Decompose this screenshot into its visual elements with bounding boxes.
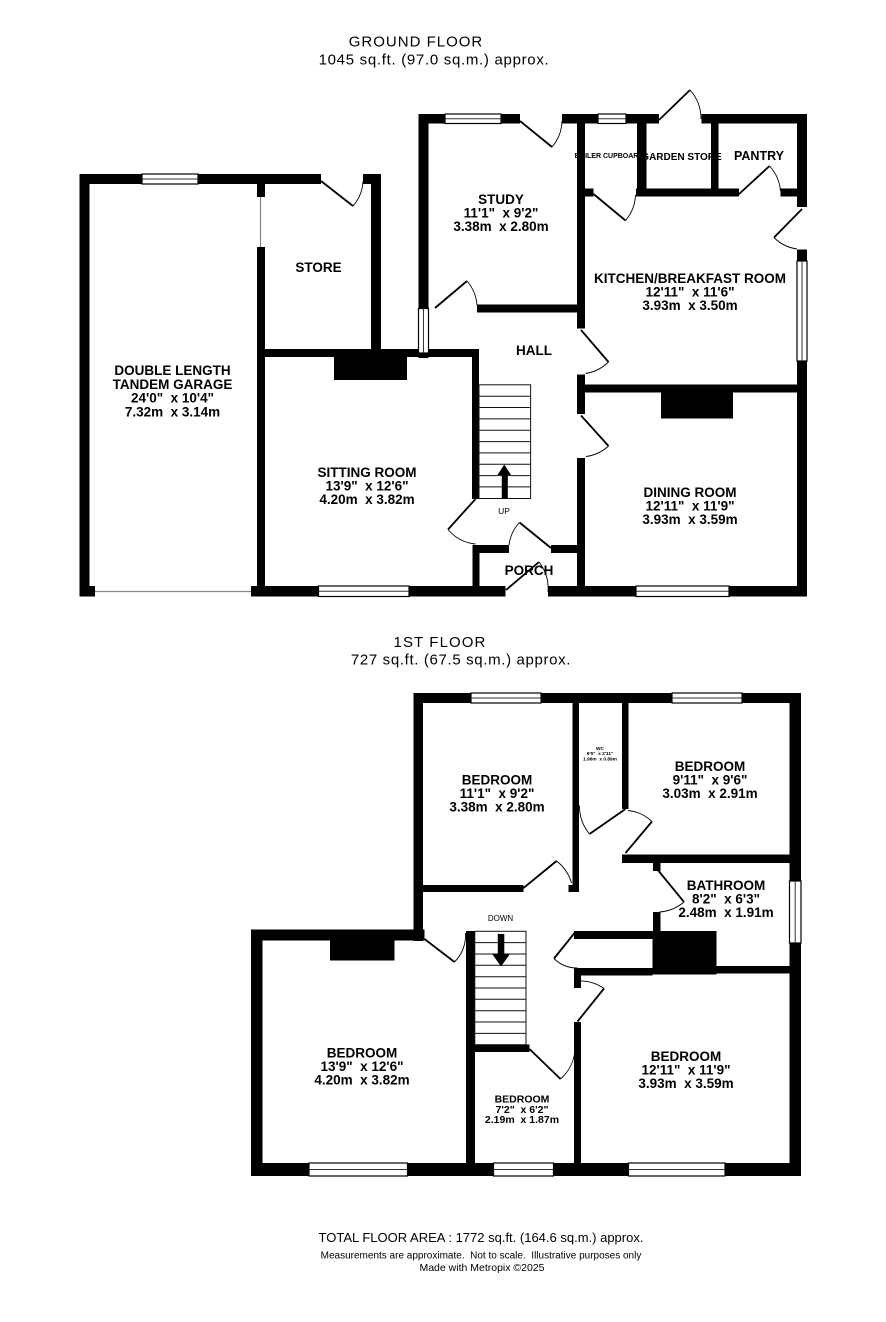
svg-text:BEDROOM9'11" x 9'6"3.03m x 2: BEDROOM9'11" x 9'6"3.03m x 2.91m (662, 759, 757, 801)
svg-text:DOUBLE LENGTHTANDEM GARAGE24'0: DOUBLE LENGTHTANDEM GARAGE24'0" x 10'4"7… (113, 363, 233, 419)
svg-text:BEDROOM7'2" x 6'2"2.19m x 1.: BEDROOM7'2" x 6'2"2.19m x 1.87m (485, 1094, 559, 1127)
svg-text:1ST FLOOR: 1ST FLOOR (394, 634, 487, 651)
svg-text:BOILER CUPBOARD: BOILER CUPBOARD (575, 153, 644, 160)
svg-text:SITTING ROOM13'9" x 12'6"4.20: SITTING ROOM13'9" x 12'6"4.20m x 3.82m (318, 465, 417, 507)
svg-text:DOWN: DOWN (488, 914, 514, 923)
svg-text:BEDROOM11'1" x 9'2"3.38m x 2: BEDROOM11'1" x 9'2"3.38m x 2.80m (449, 773, 544, 815)
svg-text:PORCH: PORCH (505, 563, 554, 578)
svg-text:GARDEN STORE: GARDEN STORE (641, 152, 722, 163)
svg-text:DINING ROOM12'11" x 11'9"3.93: DINING ROOM12'11" x 11'9"3.93m x 3.59m (642, 485, 737, 527)
svg-text:UP: UP (498, 506, 510, 516)
svg-text:1045 sq.ft. (97.0 sq.m.) appro: 1045 sq.ft. (97.0 sq.m.) approx. (319, 52, 550, 69)
svg-text:HALL: HALL (516, 343, 552, 358)
svg-text:GROUND FLOOR: GROUND FLOOR (349, 34, 484, 51)
svg-text:BEDROOM12'11" x 11'9"3.93m x: BEDROOM12'11" x 11'9"3.93m x 3.59m (638, 1049, 733, 1091)
svg-text:BEDROOM13'9" x 12'6"4.20m x: BEDROOM13'9" x 12'6"4.20m x 3.82m (314, 1046, 409, 1088)
svg-text:PANTRY: PANTRY (734, 149, 785, 163)
svg-text:Made with Metropix ©2025: Made with Metropix ©2025 (419, 1262, 544, 1274)
svg-text:BATHROOM8'2" x 6'3"2.48m x 1: BATHROOM8'2" x 6'3"2.48m x 1.91m (678, 878, 773, 920)
svg-text:STORE: STORE (295, 260, 341, 275)
svg-text:Measurements are approximate.: Measurements are approximate. Not to sca… (321, 1251, 642, 1262)
svg-text:TOTAL FLOOR AREA : 1772 sq.ft.: TOTAL FLOOR AREA : 1772 sq.ft. (164.6 sq… (319, 1230, 644, 1245)
svg-text:727 sq.ft. (67.5 sq.m.) approx: 727 sq.ft. (67.5 sq.m.) approx. (351, 652, 571, 669)
